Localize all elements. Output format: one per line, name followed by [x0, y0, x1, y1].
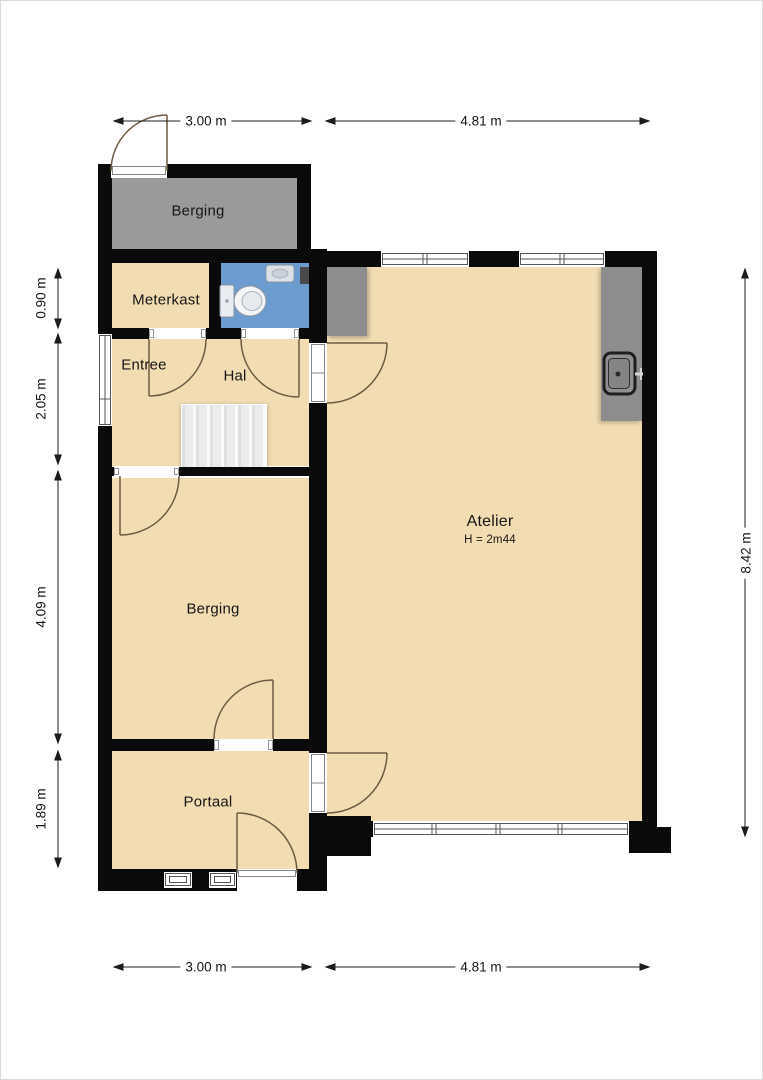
room-height-note: H = 2m44 [464, 534, 516, 546]
dimension-label-left-2: 2.05 m [34, 378, 49, 419]
dimension-label-left-4: 1.89 m [34, 788, 49, 829]
utility-sink-icon [604, 353, 643, 394]
window-icon [166, 874, 191, 886]
room-label-portaal: Portaal [184, 794, 233, 811]
sink-icon [266, 265, 294, 282]
window-icon [99, 335, 111, 425]
window-icon [211, 874, 235, 886]
dimension-label-right-1: 8.42 m [739, 527, 754, 578]
dimension-label-left-3: 4.09 m [34, 586, 49, 627]
window-icon [520, 253, 604, 265]
room-label-berging-top: Berging [171, 203, 224, 220]
window-icon [382, 253, 468, 265]
room-label-entree: Entree [121, 357, 166, 374]
floor-plan: Berging Meterkast Entree Hal Atelier H =… [0, 0, 763, 1080]
dimension-label-bottom-right: 4.81 m [455, 960, 506, 975]
dimension-label-bottom-left: 3.00 m [180, 960, 231, 975]
plan-symbols [1, 1, 763, 1080]
dimension-label-top-right: 4.81 m [455, 114, 506, 129]
door-jamb [115, 330, 299, 750]
toilet-icon [220, 285, 266, 317]
window-icon [374, 823, 628, 835]
room-label-meterkast: Meterkast [132, 292, 200, 309]
dimension-label-top-left: 3.00 m [180, 114, 231, 129]
dimension-lines [55, 118, 748, 970]
room-label-berging-middle: Berging [186, 601, 239, 618]
room-label-atelier: Atelier [467, 513, 514, 531]
dimension-label-left-1: 0.90 m [34, 277, 49, 318]
door-swing-icon [111, 115, 387, 873]
room-label-hal: Hal [223, 368, 246, 385]
